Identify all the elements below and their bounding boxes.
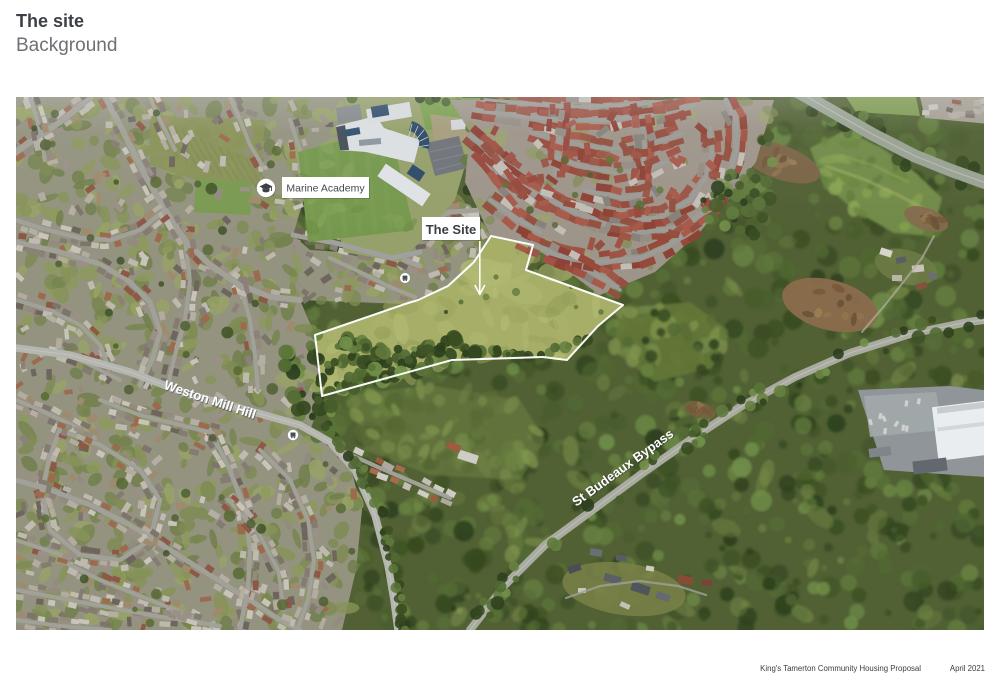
- svg-text:Marine Academy: Marine Academy: [286, 183, 365, 195]
- svg-text:The Site: The Site: [426, 222, 477, 237]
